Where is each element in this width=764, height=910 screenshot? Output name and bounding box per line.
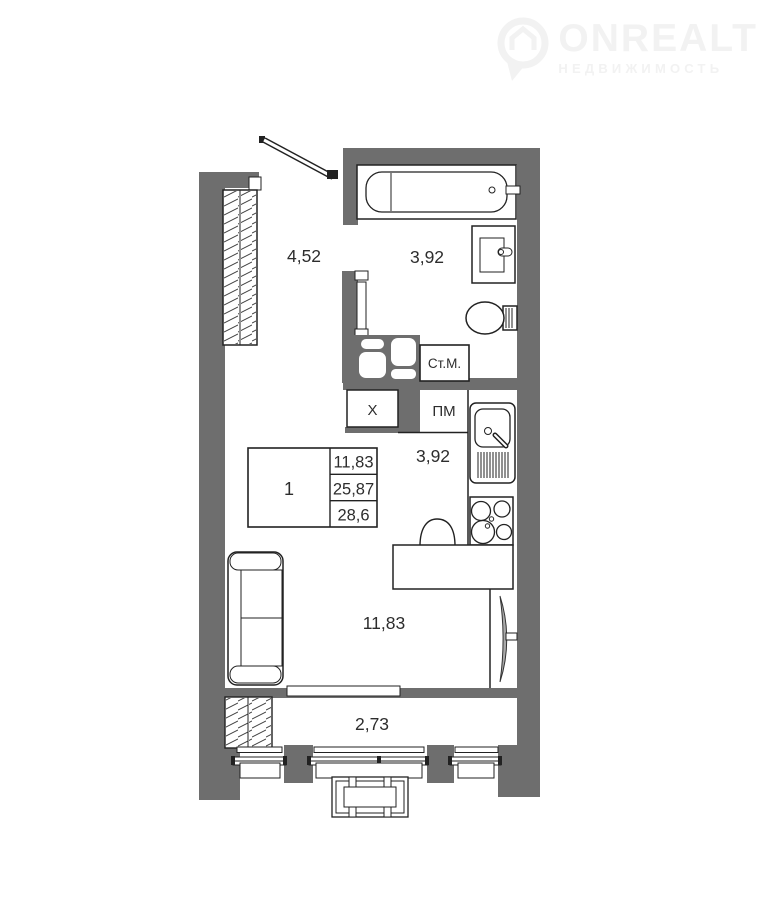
balcony-area-label: 2,73 xyxy=(355,714,389,734)
toilet xyxy=(466,302,517,334)
washing-machine-label: Ст.М. xyxy=(428,356,461,371)
room-number: 1 xyxy=(284,479,294,499)
area-row-total-balcony: 28,6 xyxy=(337,507,369,525)
door-hinge xyxy=(327,170,338,179)
balcony-storage xyxy=(225,697,272,748)
bathroom-sink-unit xyxy=(353,335,420,380)
area-row-total: 25,87 xyxy=(333,481,374,499)
kitchen-sink xyxy=(470,403,515,483)
door-jamb xyxy=(249,177,261,190)
hall-wardrobe xyxy=(223,190,257,345)
bar-table xyxy=(393,545,513,589)
fridge-label: Х xyxy=(367,402,377,419)
fridge: Х xyxy=(347,390,398,427)
dishwasher-label: ПМ xyxy=(432,403,455,420)
floorplan-page: ONREALT НЕДВИЖИМОСТЬ xyxy=(0,0,764,910)
bathtub-faucet xyxy=(506,186,520,194)
living-area-label: 11,83 xyxy=(363,613,406,633)
floorplan-drawing: Ст.М. Х ПМ xyxy=(0,0,764,910)
cabinet-handle xyxy=(506,633,517,640)
balcony-basket xyxy=(332,777,408,817)
hall-area-label: 4,52 xyxy=(287,246,321,266)
bathroom-vanity-sink xyxy=(472,226,515,283)
chair xyxy=(420,519,455,546)
balcony-windows xyxy=(231,747,502,778)
kitchen-area-label: 3,92 xyxy=(416,446,450,466)
sofa xyxy=(228,552,283,685)
area-row-living: 11,83 xyxy=(333,454,373,472)
area-table: 1 11,83 25,87 28,6 xyxy=(248,448,377,527)
entrance-door xyxy=(249,136,338,190)
stove xyxy=(470,497,513,545)
bathroom-area-label: 3,92 xyxy=(410,247,444,267)
washing-machine: Ст.М. xyxy=(420,345,469,381)
tall-cabinet xyxy=(490,589,517,688)
bathtub xyxy=(357,165,520,219)
balcony-door-opening xyxy=(287,686,400,696)
